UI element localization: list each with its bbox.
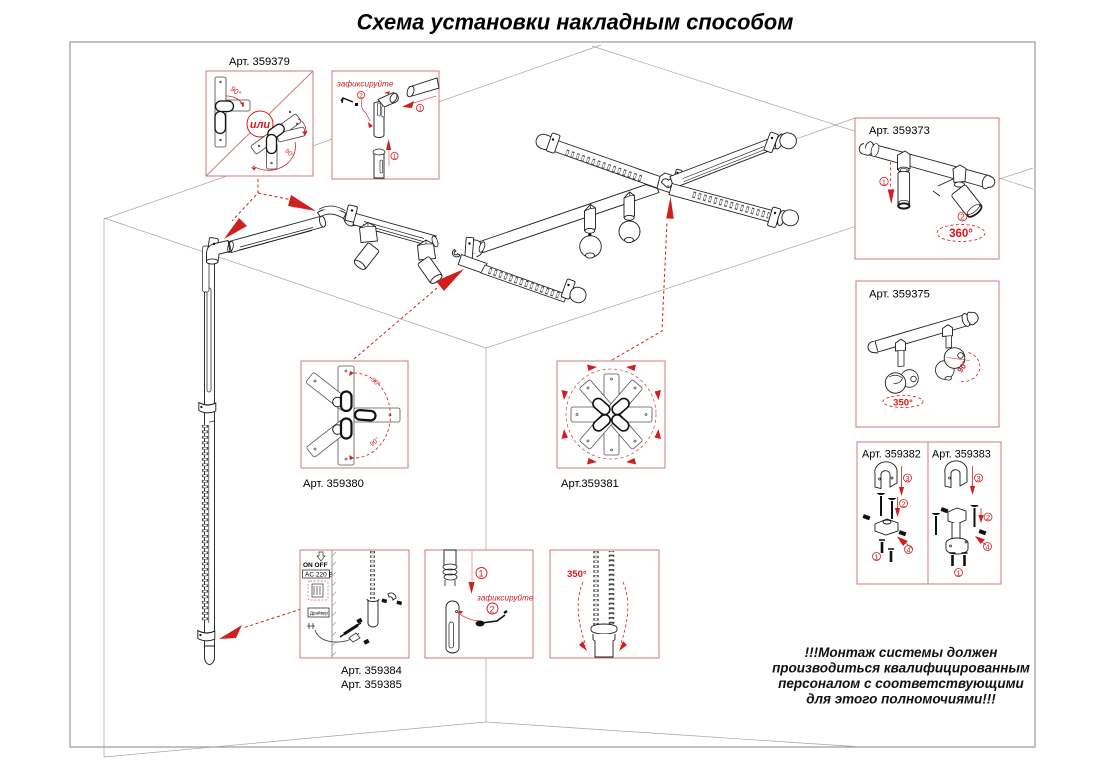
svg-text:Арт. 359382: Арт. 359382: [862, 449, 921, 461]
svg-text:AC 220 В: AC 220 В: [305, 572, 333, 579]
svg-text:Арт. 359385: Арт. 359385: [341, 679, 402, 691]
svg-text:1: 1: [956, 569, 960, 578]
svg-text:350°: 350°: [567, 569, 587, 580]
svg-text:3: 3: [976, 474, 980, 483]
svg-text:Арт. 359384: Арт. 359384: [341, 665, 402, 677]
svg-text:2: 2: [901, 500, 905, 509]
svg-text:2: 2: [359, 92, 363, 99]
svg-text:360°: 360°: [949, 228, 973, 240]
svg-text:2: 2: [960, 213, 965, 222]
svg-text:Арт. 359383: Арт. 359383: [932, 449, 991, 461]
svg-text:4: 4: [985, 543, 989, 552]
svg-text:350°: 350°: [893, 398, 913, 409]
svg-text:4: 4: [906, 546, 910, 555]
svg-text:Арт.359381: Арт.359381: [561, 478, 619, 490]
svg-text:Драйвер: Драйвер: [310, 610, 328, 616]
svg-text:!!!Монтаж системы должен: !!!Монтаж системы должен: [805, 645, 998, 660]
svg-text:1: 1: [478, 569, 483, 579]
svg-text:3: 3: [905, 474, 909, 483]
svg-text:1: 1: [874, 553, 878, 562]
svg-text:персоналом с соответствующими: персоналом с соответствующими: [778, 676, 1024, 691]
svg-text:2: 2: [489, 605, 494, 615]
svg-text:Арт. 359373: Арт. 359373: [869, 125, 930, 137]
svg-text:1: 1: [418, 105, 422, 112]
svg-text:1: 1: [393, 153, 397, 160]
svg-text:зафиксируйте: зафиксируйте: [336, 80, 394, 89]
svg-text:1: 1: [882, 177, 886, 186]
svg-text:для этого полномочиями!!!: для этого полномочиями!!!: [806, 692, 996, 707]
svg-text:Арт. 359379: Арт. 359379: [229, 56, 290, 68]
svg-text:производиться квалифицированны: производиться квалифицированным: [772, 661, 1030, 676]
svg-text:ON OFF: ON OFF: [303, 562, 328, 569]
svg-text:Арт. 359380: Арт. 359380: [303, 478, 364, 490]
svg-text:2: 2: [986, 513, 990, 522]
svg-text:Арт. 359375: Арт. 359375: [869, 289, 930, 301]
svg-text:или: или: [250, 119, 271, 131]
svg-text:Схема установки накладным спос: Схема установки накладным способом: [357, 10, 794, 35]
svg-text:зафиксируйте: зафиксируйте: [476, 594, 534, 603]
